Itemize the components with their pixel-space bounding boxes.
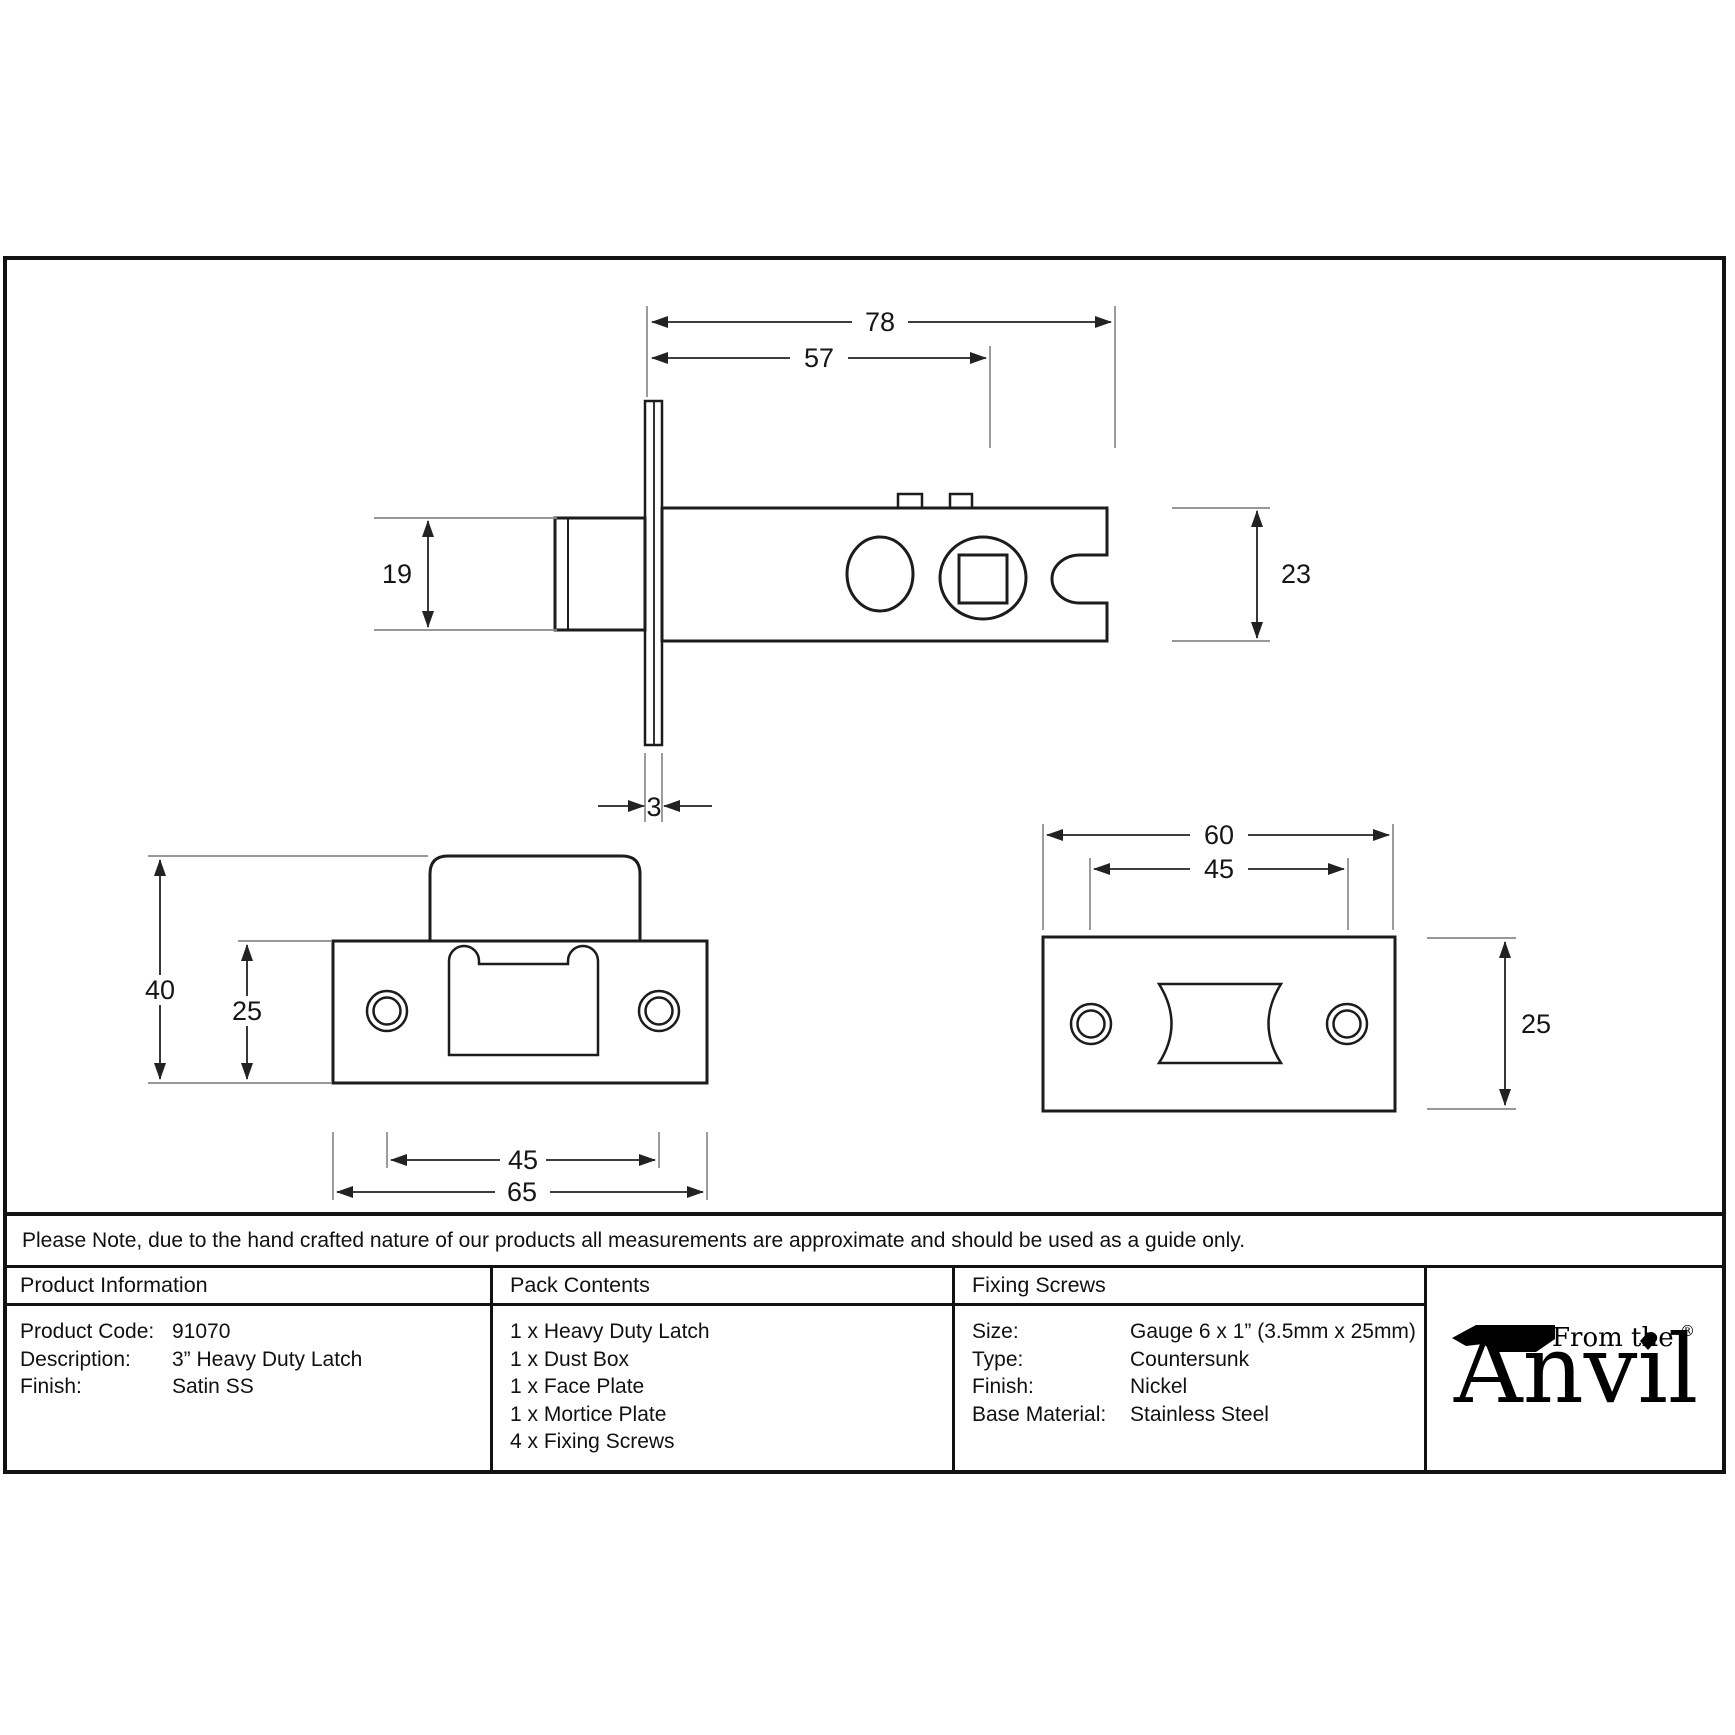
screw-hole-right-inner [1334, 1011, 1361, 1038]
latch-side-view-dimensions: 78 57 19 23 3 [374, 306, 1311, 822]
screw-hole-left-inner [374, 998, 401, 1025]
screw-hole-right-inner [646, 998, 673, 1025]
size-label: Size: [972, 1318, 1130, 1346]
mortice-plate [1043, 937, 1395, 1111]
pack-item: 1 x Mortice Plate [510, 1401, 952, 1429]
latch-cutout [449, 946, 598, 1055]
face-plate-dimensions: 40 25 45 65 [145, 856, 707, 1207]
dim-label-case-height: 23 [1281, 559, 1311, 589]
product-code-label: Product Code: [20, 1318, 172, 1346]
mortice-plate-view [1043, 937, 1395, 1111]
logo-tagline: From the [1552, 1323, 1674, 1353]
dim-label-overall-length: 78 [865, 307, 895, 337]
screw-finish-row: Finish: Nickel [972, 1373, 1424, 1401]
dim-label-hole-spacing: 45 [508, 1145, 538, 1175]
measurement-note-row: Please Note, due to the hand crafted nat… [3, 1212, 1726, 1268]
product-code-value: 91070 [172, 1318, 230, 1346]
screw-hole-left-inner [1078, 1011, 1105, 1038]
registered-mark: ® [1680, 1322, 1695, 1340]
finish-row: Finish: Satin SS [20, 1373, 490, 1401]
finish-label: Finish: [20, 1373, 172, 1401]
fixing-screws-column: Fixing Screws Size: Gauge 6 x 1” (3.5mm … [955, 1268, 1427, 1470]
spindle-hole [959, 555, 1007, 603]
size-value: Gauge 6 x 1” (3.5mm x 25mm) [1130, 1318, 1416, 1346]
dim-label-plate-height: 25 [232, 996, 262, 1026]
description-value: 3” Heavy Duty Latch [172, 1346, 362, 1374]
mortice-plate-dimensions: 60 45 25 [1043, 820, 1551, 1109]
case-tab-left [898, 494, 922, 508]
from-the-anvil-logo: Anvil From the ® [1452, 1322, 1702, 1417]
dust-box-tab [430, 856, 640, 941]
latch-case [662, 508, 1107, 641]
type-value: Countersunk [1130, 1346, 1249, 1374]
dim-label-plate-height: 25 [1521, 1009, 1551, 1039]
dim-label-overall-height: 40 [145, 975, 175, 1005]
measurement-note: Please Note, due to the hand crafted nat… [22, 1229, 1245, 1253]
face-plate [333, 941, 707, 1083]
pack-item: 1 x Dust Box [510, 1346, 952, 1374]
screw-finish-label: Finish: [972, 1373, 1130, 1401]
brand-logo-cell: Anvil From the ® [1427, 1268, 1726, 1470]
size-row: Size: Gauge 6 x 1” (3.5mm x 25mm) [972, 1318, 1424, 1346]
mortice-cutout [1159, 984, 1281, 1063]
product-information-column: Product Information Product Code: 91070 … [3, 1268, 493, 1470]
base-material-value: Stainless Steel [1130, 1401, 1269, 1429]
type-label: Type: [972, 1346, 1130, 1374]
product-information-header: Product Information [3, 1268, 490, 1306]
technical-drawings: 78 57 19 23 3 [0, 0, 1735, 1735]
dim-label-faceplate-thickness: 3 [646, 792, 661, 822]
latch-side-view [555, 401, 1107, 745]
base-material-label: Base Material: [972, 1401, 1130, 1429]
base-material-row: Base Material: Stainless Steel [972, 1401, 1424, 1429]
pack-item: 1 x Face Plate [510, 1373, 952, 1401]
type-row: Type: Countersunk [972, 1346, 1424, 1374]
case-tab-right [950, 494, 972, 508]
dim-label-plate-width: 60 [1204, 820, 1234, 850]
pack-contents-column: Pack Contents 1 x Heavy Duty Latch 1 x D… [493, 1268, 955, 1470]
dim-label-hole-spacing: 45 [1204, 854, 1234, 884]
description-label: Description: [20, 1346, 172, 1374]
product-code-row: Product Code: 91070 [20, 1318, 490, 1346]
pack-item: 4 x Fixing Screws [510, 1428, 952, 1456]
pack-contents-header: Pack Contents [493, 1268, 952, 1306]
dim-label-bolt-height: 19 [382, 559, 412, 589]
spec-sheet: 78 57 19 23 3 [0, 0, 1735, 1735]
finish-value: Satin SS [172, 1373, 254, 1401]
pack-item: 1 x Heavy Duty Latch [510, 1318, 952, 1346]
oval-hole [847, 537, 913, 611]
face-plate-view [333, 856, 707, 1083]
description-row: Description: 3” Heavy Duty Latch [20, 1346, 490, 1374]
dim-label-case-length: 57 [804, 343, 834, 373]
screw-finish-value: Nickel [1130, 1373, 1187, 1401]
fixing-screws-header: Fixing Screws [955, 1268, 1424, 1306]
dim-label-plate-width: 65 [507, 1177, 537, 1207]
follower [940, 537, 1026, 619]
